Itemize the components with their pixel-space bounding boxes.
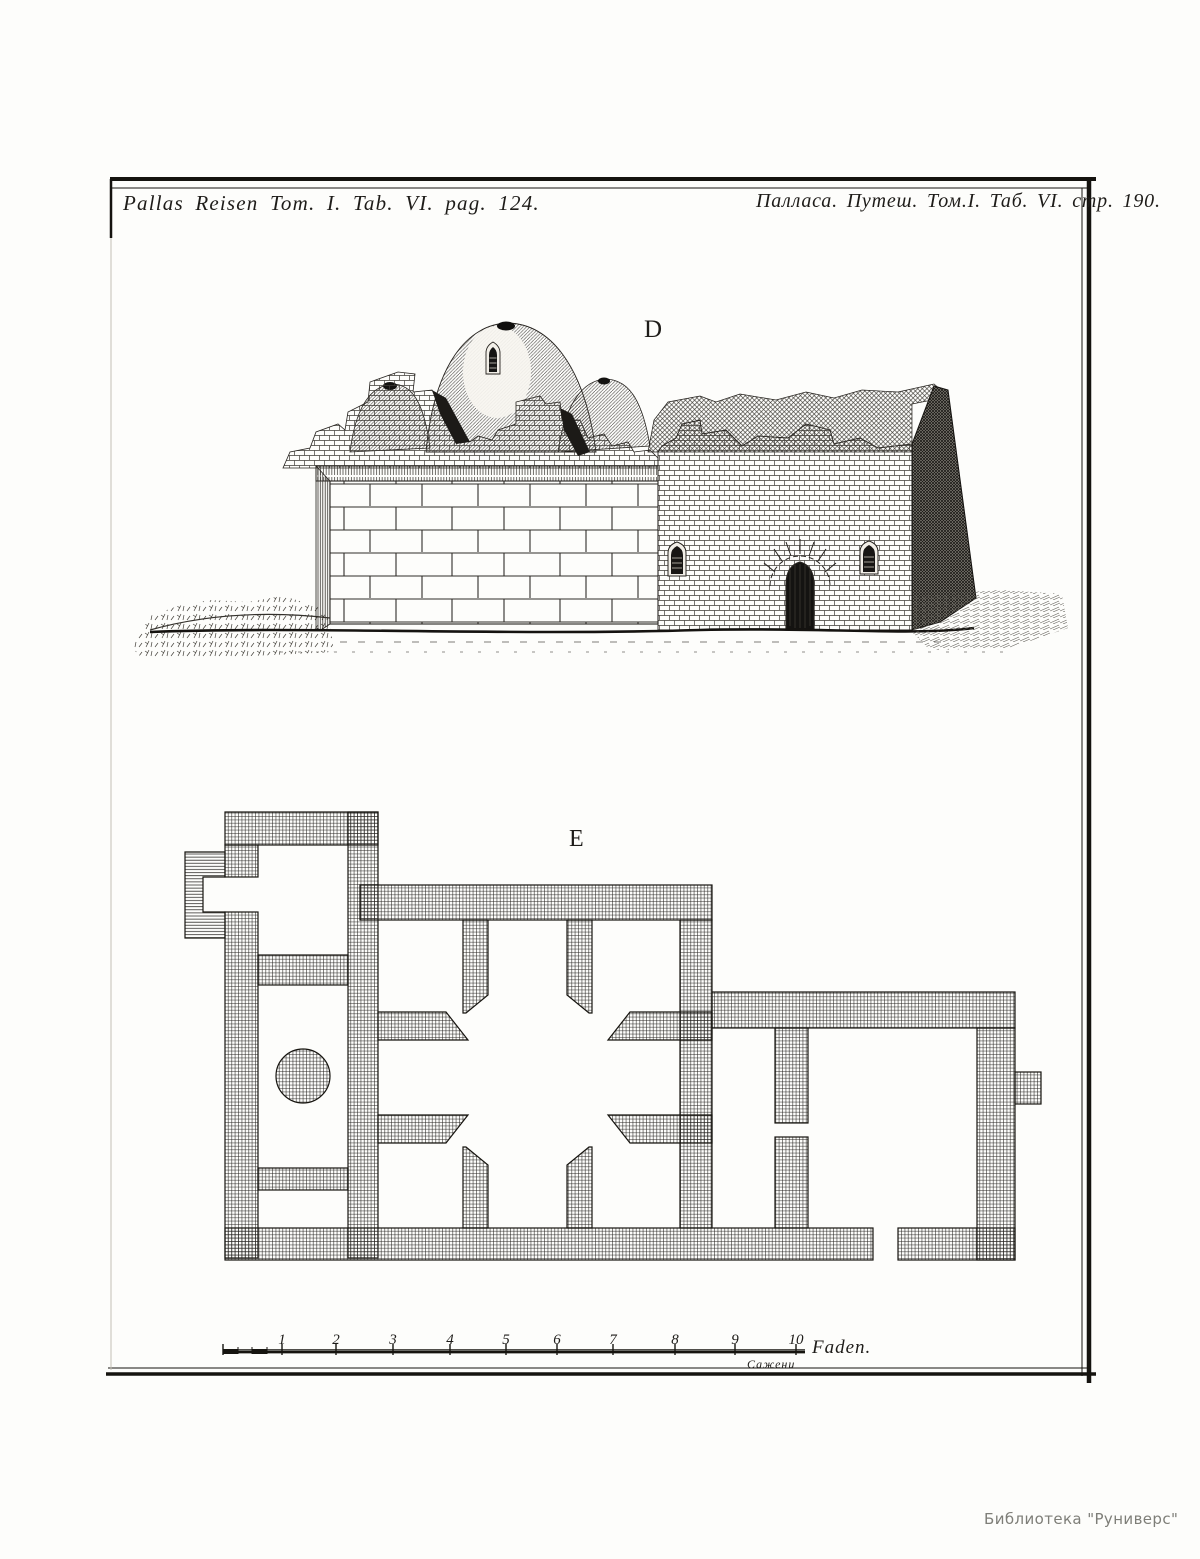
plan-stub-north-right [567, 920, 592, 1013]
scale-unit-latin: Faden. [812, 1337, 871, 1359]
plan-wall-under-room1 [258, 955, 348, 985]
right-facade [658, 420, 912, 630]
central-dome-finial [497, 322, 515, 331]
figure-label-elevation: D [644, 316, 662, 344]
plan-wall-top-central [360, 885, 712, 920]
scale-tick-label: 4 [446, 1332, 454, 1349]
plan-wall-left-upper [225, 845, 258, 877]
plan-stub-west-upper [378, 1012, 468, 1040]
round-pillar [276, 1049, 330, 1103]
front-ashlar-wall [330, 481, 658, 624]
cornice-band [316, 466, 658, 481]
scanned-plate-page: Pallas Reisen Tom. I. Tab. VI. pag. 124.… [0, 0, 1200, 1559]
scale-tick-label: 2 [332, 1332, 340, 1349]
ruined-building-elevation [132, 322, 1068, 659]
floor-plan [185, 812, 1041, 1260]
scale-tick-label: 5 [502, 1332, 510, 1349]
plan-wall-under-room2 [258, 1168, 348, 1190]
arched-window-left [668, 542, 686, 576]
header-right-caption: Палласа. Путеш. Том.I. Таб. VI. стр. 190… [756, 190, 1161, 213]
header-left-caption: Pallas Reisen Tom. I. Tab. VI. pag. 124. [123, 191, 540, 216]
plan-wall-left-divider [348, 812, 378, 1258]
plan-stub-west-lower [378, 1115, 468, 1143]
entrance-projection [185, 852, 225, 938]
ground-shadow-right [912, 590, 1068, 650]
scale-tick-labels: 12345678910 [0, 1332, 1200, 1352]
plan-partition-lower [775, 1137, 808, 1228]
wall-corner-shadow [316, 466, 330, 630]
figure-label-plan: E [569, 826, 584, 853]
scale-tick-label: 7 [609, 1332, 617, 1349]
scale-tick-label: 3 [389, 1332, 397, 1349]
plan-stub-east-upper [608, 1012, 712, 1040]
plan-stub-south-right [567, 1147, 592, 1228]
right-dome-finial [598, 378, 610, 385]
plan-wall-central-divider [680, 920, 712, 1228]
scale-tick-label: 6 [553, 1332, 561, 1349]
dome-niche-window [486, 342, 500, 374]
plan-partition-upper [775, 1028, 808, 1123]
scale-unit-cyrillic: Сажени [747, 1357, 795, 1372]
plate-engraving [0, 0, 1200, 1559]
plan-stub-north-left [463, 920, 488, 1013]
plan-wall-right-bump [1015, 1072, 1041, 1104]
plan-wall-right-outer [977, 1028, 1015, 1260]
scale-tick-label: 10 [789, 1332, 804, 1349]
plan-wall-bottom-main [225, 1228, 873, 1260]
arched-window-right [860, 541, 878, 574]
plan-wall-left-lower [225, 912, 258, 1258]
library-watermark: Библиотека "Руниверс" [984, 1510, 1178, 1528]
plan-wall-top-right-wing [712, 992, 1015, 1028]
scale-tick-label: 9 [731, 1332, 739, 1349]
scale-tick-label: 8 [671, 1332, 679, 1349]
scale-tick-label: 1 [278, 1332, 286, 1349]
plan-stub-east-lower [608, 1115, 712, 1143]
plan-stub-south-left [463, 1147, 488, 1228]
